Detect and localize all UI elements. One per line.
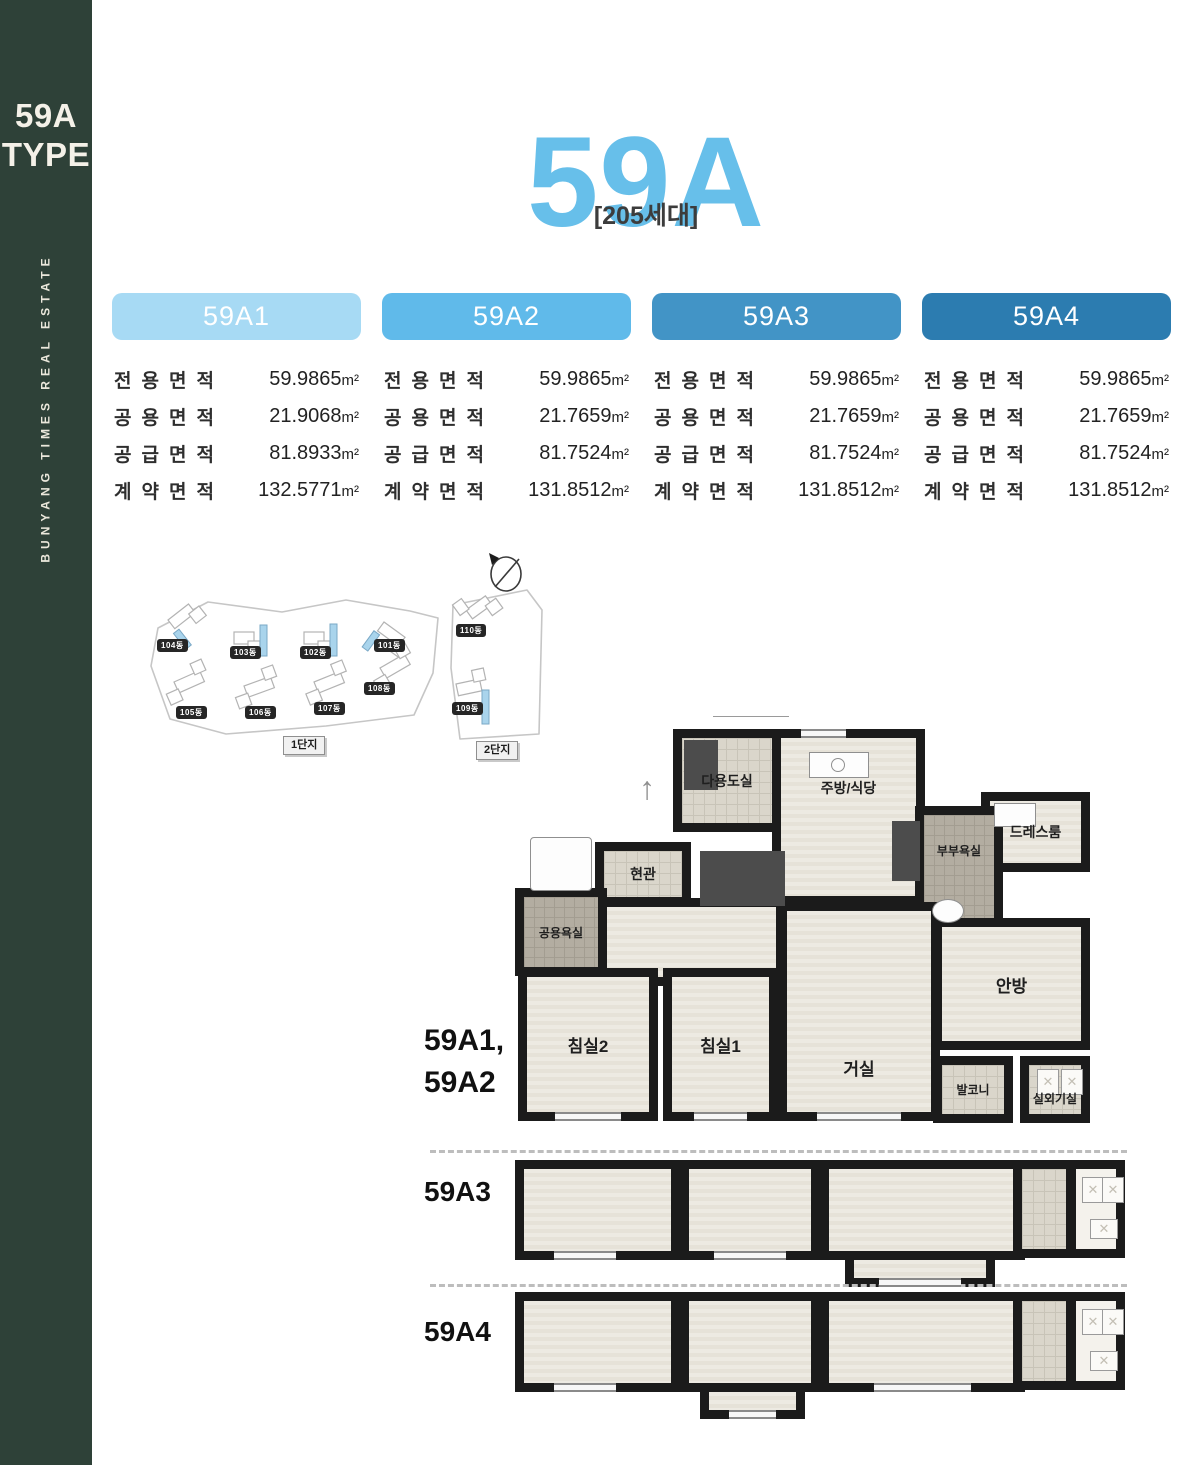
room-common-bath-label: 공용욕실: [539, 924, 583, 941]
area-row-label: 전용면적: [924, 366, 1034, 393]
area-unit: m²: [882, 483, 900, 500]
window: [694, 1112, 747, 1121]
variant-column-59a3: 59A3 전용면적59.9865m² 공용면적21.7659m² 공급면적81.…: [652, 293, 901, 509]
room-bedroom1-label: 침실1: [700, 1032, 741, 1057]
area-row-label: 전용면적: [384, 366, 494, 393]
area-row-value: 59.9865m²: [269, 368, 359, 391]
room-ac: 실외기실 ✕ ✕: [1020, 1056, 1090, 1123]
variant-pill-59a4: 59A4: [922, 293, 1171, 340]
unit-count-subtitle: [205세대]: [92, 196, 1200, 232]
area-row-label: 계약면적: [924, 477, 1034, 504]
building-badge-103: 103동: [230, 646, 261, 659]
area-row-label: 전용면적: [654, 366, 764, 393]
area-row-label: 공급면적: [384, 440, 494, 467]
room-master-bath-label: 부부욕실: [937, 842, 981, 859]
ac-outdoor-unit: ✕: [1090, 1351, 1118, 1371]
site-plan: .bld{fill:#ffffff;stroke:#b3b3b3;stroke-…: [130, 548, 560, 766]
area-row-label: 공용면적: [114, 403, 224, 430]
area-row-label: 공급면적: [924, 440, 1034, 467]
strip-room-bump: [845, 1251, 995, 1287]
strip-room: [515, 1292, 680, 1392]
window: [801, 729, 846, 738]
floorplan-main-label: 59A1, 59A2: [424, 1020, 504, 1104]
area-row: 공급면적81.7524m²: [652, 435, 901, 472]
area-row-label: 계약면적: [654, 477, 764, 504]
area-row: 전용면적59.9865m²: [652, 361, 901, 398]
window: [554, 1251, 616, 1260]
brand-vertical-text: BUNYANG TIMES REAL ESTATE: [39, 253, 53, 562]
variant-column-59a1: 59A1 전용면적59.9865m² 공용면적21.9068m² 공급면적81.…: [112, 293, 361, 509]
building-cluster-105: [159, 659, 213, 705]
variant-pill-59a3: 59A3: [652, 293, 901, 340]
window: [874, 1383, 971, 1392]
area-row: 계약면적132.5771m²: [112, 472, 361, 509]
strip-room-bump: [700, 1383, 805, 1419]
area-unit: m²: [1152, 483, 1170, 500]
room-entrance: 현관: [595, 842, 691, 906]
strip-room: [820, 1160, 1025, 1260]
area-row-label: 공용면적: [924, 403, 1034, 430]
room-living: 거실: [778, 902, 940, 1121]
area-rows-59a1: 전용면적59.9865m² 공용면적21.9068m² 공급면적81.8933m…: [112, 361, 361, 509]
area-row: 공급면적81.7524m²: [922, 435, 1171, 472]
window: [714, 1251, 786, 1260]
area-unit: m²: [342, 483, 360, 500]
area-unit: m²: [612, 446, 630, 463]
area-row-value: 132.5771m²: [258, 479, 359, 502]
room-living-label: 거실: [843, 1055, 874, 1080]
variant-pill-59a2: 59A2: [382, 293, 631, 340]
room-kitchen-label: 주방/식당: [821, 778, 876, 798]
area-row-value: 81.7524m²: [809, 442, 899, 465]
area-row-value: 81.7524m²: [539, 442, 629, 465]
toilet: [932, 899, 964, 923]
strip-room: [680, 1160, 820, 1260]
floorplan-59a4: ✕ ✕ ✕: [515, 1292, 1125, 1424]
building-badge-106: 106동: [245, 706, 276, 719]
area-unit: m²: [342, 446, 360, 463]
sidebar-vertical-text-wrap: BUNYANG TIMES REAL ESTATE: [0, 262, 92, 554]
building-badge-107: 107동: [314, 702, 345, 715]
area-row: 공용면적21.7659m²: [382, 398, 631, 435]
area-row-value: 21.7659m²: [1079, 405, 1169, 428]
building-slat-109: [482, 690, 489, 724]
section-divider: [430, 1150, 1127, 1153]
area-row: 계약면적131.8512m²: [922, 472, 1171, 509]
room-dress-label: 드레스룸: [1010, 822, 1062, 842]
area-row-value: 21.7659m²: [809, 405, 899, 428]
window: [879, 1278, 961, 1287]
sidebar: 59A TYPE BUNYANG TIMES REAL ESTATE: [0, 0, 92, 1465]
strip-room: [515, 1160, 680, 1260]
room-common-bath: 공용욕실: [515, 888, 607, 976]
building-slat-103: [260, 625, 267, 656]
ac-outdoor-unit: ✕: [1102, 1309, 1124, 1335]
room-master-bedroom: 안방: [933, 918, 1090, 1050]
room-balcony-label: 발코니: [956, 1081, 989, 1098]
floorplan-main-label-line1: 59A1,: [424, 1020, 504, 1062]
building-badge-105: 105동: [176, 706, 207, 719]
area-row-value: 21.7659m²: [539, 405, 629, 428]
sidebar-type-line1: 59A: [0, 96, 92, 135]
area-row-value: 131.8512m²: [1068, 479, 1169, 502]
area-unit: m²: [612, 483, 630, 500]
area-row-label: 공급면적: [654, 440, 764, 467]
floorplan-59a3-label: 59A3: [424, 1176, 491, 1208]
area-row: 공용면적21.7659m²: [922, 398, 1171, 435]
area-unit: m²: [882, 372, 900, 389]
room-bedroom2: 침실2: [518, 968, 658, 1121]
area-row-value: 81.8933m²: [269, 442, 359, 465]
ac-outdoor-unit: ✕: [1090, 1219, 1118, 1239]
area-row-value: 81.7524m²: [1079, 442, 1169, 465]
floorplan-main-label-line2: 59A2: [424, 1062, 504, 1104]
area-rows-59a2: 전용면적59.9865m² 공용면적21.7659m² 공급면적81.7524m…: [382, 361, 631, 509]
strip-ac-room: ✕ ✕ ✕: [1067, 1292, 1125, 1390]
area-row-label: 공용면적: [654, 403, 764, 430]
room-master-bedroom-label: 안방: [996, 972, 1027, 997]
room-ac-label: 실외기실: [1033, 1090, 1077, 1107]
variant-column-59a2: 59A2 전용면적59.9865m² 공용면적21.7659m² 공급면적81.…: [382, 293, 631, 509]
bathtub: [530, 837, 592, 891]
variant-pill-59a1: 59A1: [112, 293, 361, 340]
ac-outdoor-unit: ✕: [1102, 1177, 1124, 1203]
area-row-label: 공급면적: [114, 440, 224, 467]
sidebar-type-line2: TYPE: [0, 135, 92, 174]
kitchen-sink-basin: [831, 758, 845, 772]
ac-outdoor-unit: ✕: [1082, 1309, 1104, 1335]
area-row-label: 전용면적: [114, 366, 224, 393]
building-badge-110: 110동: [456, 624, 486, 637]
area-row: 전용면적59.9865m²: [382, 361, 631, 398]
strip-room: [820, 1292, 1025, 1392]
room-entrance-label: 현관: [630, 864, 656, 884]
area-unit: m²: [882, 409, 900, 426]
flyer-page: { "colors": { "sidebar_bg": "#2e4138", "…: [0, 0, 1200, 1465]
area-row: 전용면적59.9865m²: [922, 361, 1171, 398]
entrance-direction-arrow: ↑: [639, 770, 655, 807]
room-utility-label: 다용도실: [701, 771, 753, 791]
area-unit: m²: [882, 446, 900, 463]
window: [817, 1112, 901, 1121]
site-plan-graphic: .bld{fill:#ffffff;stroke:#b3b3b3;stroke-…: [130, 548, 560, 766]
area-unit: m²: [1152, 372, 1170, 389]
building-cluster-107: [299, 660, 353, 705]
strip-room: [680, 1292, 820, 1392]
area-row-label: 계약면적: [384, 477, 494, 504]
page-title: 59A: [92, 108, 1200, 258]
strip-balcony: [1013, 1160, 1075, 1258]
section-divider: [430, 1284, 1127, 1287]
dimension-line: [713, 716, 789, 717]
strip-balcony: [1013, 1292, 1075, 1390]
floorplan-main: ↑ 다용도실 주방/식당 드레스룸 부부욕실 현관 공용욕실 침실2 침실1 거…: [515, 726, 1090, 1126]
floorplan-59a3: ✕ ✕ ✕: [515, 1160, 1125, 1292]
area-row: 공용면적21.9068m²: [112, 398, 361, 435]
area-unit: m²: [612, 372, 630, 389]
window: [729, 1410, 776, 1419]
area-row-value: 131.8512m²: [798, 479, 899, 502]
building-badge-108: 108동: [364, 682, 395, 695]
closet-block: [700, 851, 785, 906]
area-row: 계약면적131.8512m²: [652, 472, 901, 509]
area-row-label: 공용면적: [384, 403, 494, 430]
building-badge-101: 101동: [374, 639, 405, 652]
strip-ac-room: ✕ ✕ ✕: [1067, 1160, 1125, 1258]
area-unit: m²: [1152, 409, 1170, 426]
complex1-label: 1단지: [283, 736, 325, 755]
floorplan-59a4-label: 59A4: [424, 1316, 491, 1348]
variant-column-59a4: 59A4 전용면적59.9865m² 공용면적21.7659m² 공급면적81.…: [922, 293, 1171, 509]
closet-block: [892, 821, 920, 881]
ac-outdoor-unit: ✕: [1082, 1177, 1104, 1203]
room-balcony: 발코니: [933, 1056, 1013, 1123]
area-row: 공용면적21.7659m²: [652, 398, 901, 435]
area-rows-59a3: 전용면적59.9865m² 공용면적21.7659m² 공급면적81.7524m…: [652, 361, 901, 509]
area-row: 공급면적81.8933m²: [112, 435, 361, 472]
area-unit: m²: [342, 372, 360, 389]
area-row-value: 59.9865m²: [1079, 368, 1169, 391]
room-bedroom2-label: 침실2: [568, 1032, 609, 1057]
building-badge-104: 104동: [157, 639, 188, 652]
area-row-value: 21.9068m²: [269, 405, 359, 428]
area-unit: m²: [342, 409, 360, 426]
sidebar-type-label: 59A TYPE: [0, 96, 92, 174]
building-cluster-106: [229, 665, 282, 709]
area-unit: m²: [1152, 446, 1170, 463]
area-row-value: 131.8512m²: [528, 479, 629, 502]
area-row: 전용면적59.9865m²: [112, 361, 361, 398]
area-row-value: 59.9865m²: [539, 368, 629, 391]
area-row: 공급면적81.7524m²: [382, 435, 631, 472]
building-badge-102: 102동: [300, 646, 331, 659]
area-row-value: 59.9865m²: [809, 368, 899, 391]
room-bedroom1: 침실1: [663, 968, 778, 1121]
building-badge-109: 109동: [452, 702, 483, 715]
building-slat-102: [330, 624, 337, 656]
area-row-label: 계약면적: [114, 477, 224, 504]
room-utility: 다용도실: [673, 729, 781, 832]
area-row: 계약면적131.8512m²: [382, 472, 631, 509]
window: [554, 1383, 616, 1392]
area-rows-59a4: 전용면적59.9865m² 공용면적21.7659m² 공급면적81.7524m…: [922, 361, 1171, 509]
area-unit: m²: [612, 409, 630, 426]
compass-icon: [489, 553, 521, 591]
complex2-label: 2단지: [476, 741, 518, 760]
window: [555, 1112, 621, 1121]
